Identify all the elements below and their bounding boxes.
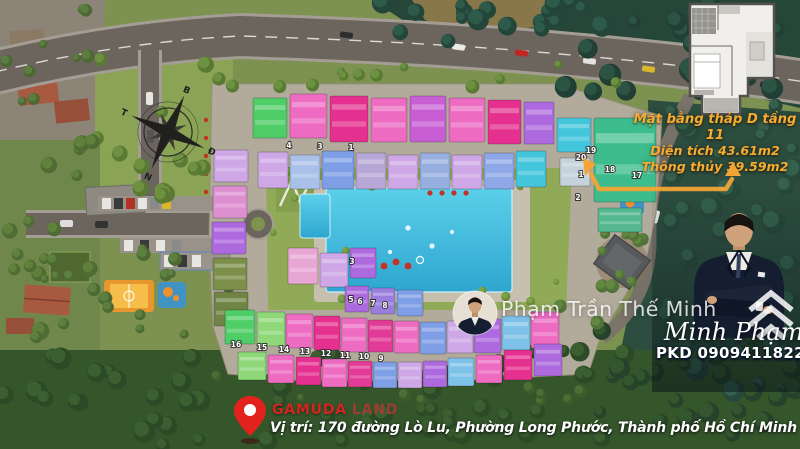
kitchen bbox=[718, 6, 740, 14]
unit-label: 7 bbox=[370, 299, 375, 308]
building-block bbox=[394, 321, 419, 353]
building-block bbox=[290, 155, 320, 189]
building-block bbox=[320, 253, 348, 287]
building-block bbox=[213, 186, 247, 218]
unit-label: 6 bbox=[357, 297, 362, 306]
agent-phone: PKD 0909411822 bbox=[656, 344, 800, 362]
building-block bbox=[296, 357, 321, 385]
building-block bbox=[410, 96, 446, 142]
building-block bbox=[397, 290, 423, 316]
unit-label: 5 bbox=[348, 295, 353, 304]
building-block bbox=[368, 320, 393, 352]
building-block bbox=[484, 153, 514, 189]
unit-label: 13 bbox=[300, 347, 310, 356]
building-block bbox=[502, 316, 530, 350]
building-block bbox=[322, 359, 347, 387]
building-block bbox=[322, 151, 354, 189]
building-block bbox=[225, 310, 255, 344]
building-block bbox=[423, 361, 447, 387]
building-block bbox=[524, 102, 554, 144]
building-block bbox=[452, 155, 482, 189]
floor-plan-inset bbox=[688, 2, 776, 116]
building-block bbox=[213, 258, 247, 290]
building-block bbox=[420, 322, 446, 354]
building-block bbox=[330, 96, 368, 142]
building-block bbox=[214, 150, 248, 182]
building-block bbox=[253, 98, 287, 138]
building-block bbox=[488, 100, 521, 144]
building-block bbox=[314, 316, 340, 350]
building-block bbox=[448, 358, 474, 386]
building-block bbox=[258, 152, 288, 188]
balcony bbox=[704, 98, 738, 112]
brand-name: GAMUDA bbox=[272, 402, 347, 418]
building-block bbox=[388, 155, 418, 189]
unit-label: 3 bbox=[349, 257, 354, 266]
unit-label: 9 bbox=[378, 354, 383, 363]
building-block bbox=[356, 153, 386, 189]
brand-lockup: GAMUDALAND bbox=[272, 402, 398, 418]
house bbox=[23, 284, 71, 315]
building-block bbox=[598, 208, 642, 232]
building-block bbox=[290, 94, 327, 138]
building-block bbox=[516, 151, 546, 187]
building-block bbox=[476, 355, 502, 383]
building-block bbox=[420, 153, 450, 189]
unit-label: 15 bbox=[257, 343, 267, 352]
building-block bbox=[268, 355, 294, 383]
unit-label: 11 bbox=[340, 351, 350, 360]
brand-suffix: LAND bbox=[352, 402, 398, 418]
agent-name: Minh Phạm bbox=[664, 318, 800, 346]
building-block bbox=[341, 318, 367, 352]
building-block bbox=[534, 344, 562, 376]
marketing-poster: 431201918171235678161514131211109 B Đ N … bbox=[0, 0, 800, 449]
unit-label: 10 bbox=[359, 352, 369, 361]
unit-label: 8 bbox=[382, 301, 387, 310]
unit-label: 1 bbox=[348, 143, 353, 152]
building-block bbox=[371, 98, 407, 142]
building-block bbox=[286, 314, 313, 348]
building-block bbox=[257, 312, 285, 346]
location-pin-icon bbox=[232, 394, 268, 446]
building-block bbox=[398, 362, 422, 388]
avatar bbox=[452, 290, 498, 336]
building-block bbox=[449, 98, 485, 142]
building-block bbox=[348, 361, 372, 387]
unit-label: 16 bbox=[231, 340, 241, 349]
building-block bbox=[288, 248, 318, 284]
unit-label: 3 bbox=[317, 142, 322, 151]
unit-label: 4 bbox=[286, 141, 291, 150]
building-block bbox=[373, 362, 397, 388]
bed bbox=[694, 54, 720, 88]
building-block bbox=[212, 222, 246, 254]
watermark-name: Phạm Trần Thế Minh bbox=[501, 297, 717, 321]
building-block bbox=[238, 352, 266, 380]
unit-title: Mặt bằng tháp D tầng 11 bbox=[630, 112, 800, 143]
unit-label: 12 bbox=[321, 349, 331, 358]
address-line: Vị trí: 170 đường Lò Lu, Phường Long Phư… bbox=[270, 420, 797, 436]
building-block bbox=[504, 350, 532, 380]
unit-label: 14 bbox=[279, 345, 289, 354]
